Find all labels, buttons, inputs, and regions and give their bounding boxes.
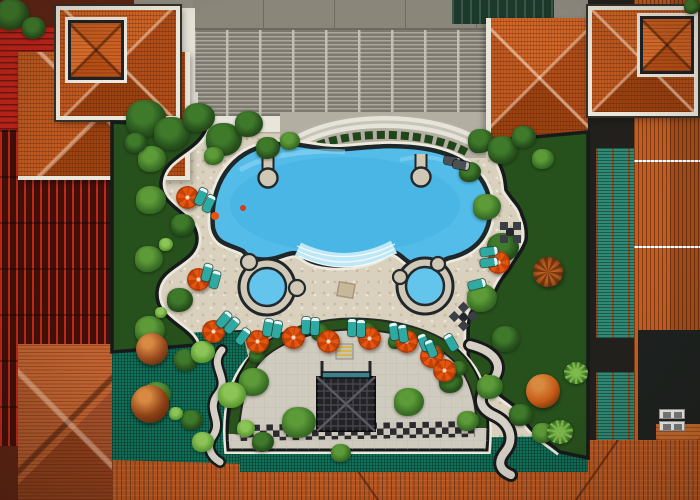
deck-mat bbox=[337, 282, 355, 299]
pool-float bbox=[240, 205, 246, 211]
garden-stairs bbox=[336, 344, 353, 359]
swimming-pool bbox=[211, 144, 490, 315]
pergola-lattice bbox=[317, 361, 375, 431]
planter-band-left bbox=[112, 122, 206, 352]
aerial-photo-hotel-pool-courtyard bbox=[0, 0, 700, 500]
pool-float bbox=[211, 212, 219, 220]
courtyard-vector-scene bbox=[0, 0, 700, 500]
lower-garden-courtyard bbox=[227, 324, 488, 450]
